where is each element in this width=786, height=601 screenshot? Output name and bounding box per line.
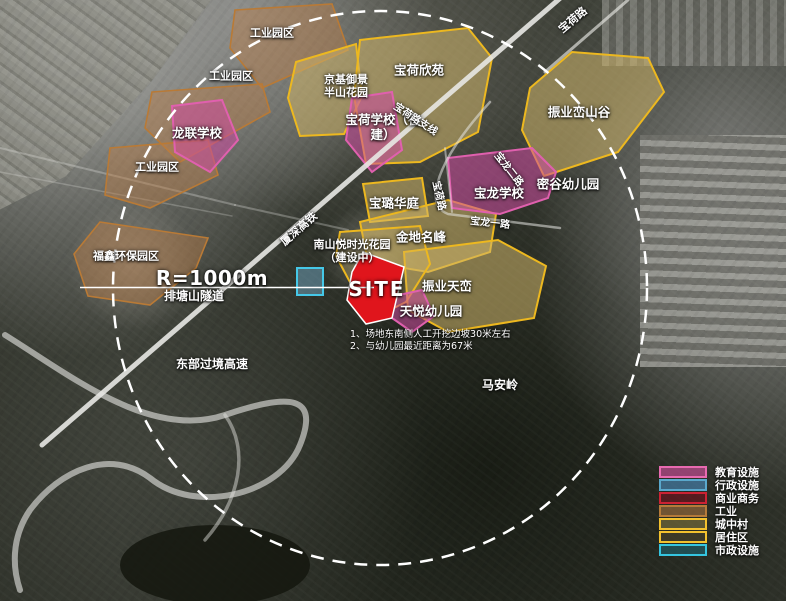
legend-row-commercial: 商业商务 xyxy=(659,493,759,503)
note-line-2: 2、与幼儿园最近距离为67米 xyxy=(350,341,511,353)
label-zhenye-luanshangu: 振业峦山谷 xyxy=(548,105,611,120)
legend-swatch-industry xyxy=(659,505,707,517)
label-site: SITE xyxy=(348,277,405,301)
legend-swatch-residential xyxy=(659,531,707,543)
label-zhenye-tianluan: 振业天峦 xyxy=(422,279,472,294)
label-tianyue-kindergarten: 天悦幼儿园 xyxy=(400,304,463,319)
legend-swatch-education xyxy=(659,466,707,478)
legend-swatch-urban-village xyxy=(659,518,707,530)
label-baolu-huating: 宝璐华庭 xyxy=(369,196,419,211)
note-line-1: 1、场地东南侧人工开挖边坡30米左右 xyxy=(350,329,511,341)
legend-row-industry: 工业 xyxy=(659,506,759,516)
label-maanling: 马安岭 xyxy=(482,378,518,392)
legend-row-urban-village: 城中村 xyxy=(659,519,759,529)
label-industrial-park-3: 工业园区 xyxy=(135,160,179,173)
label-jingji-yujing: 京基御景 半山花园 xyxy=(324,73,368,99)
legend-row-residential: 居住区 xyxy=(659,532,759,542)
legend-row-education: 教育设施 xyxy=(659,467,759,477)
site-analysis-map: 工业园区 工业园区 工业园区 龙联学校 京基御景 半山花园 宝荷学校（在建） 宝… xyxy=(0,0,786,601)
label-eastern-bypass: 东部过境高速 xyxy=(176,357,248,371)
label-longlian-school: 龙联学校 xyxy=(172,126,222,141)
legend-label-municipal: 市政设施 xyxy=(715,542,759,558)
label-paitangshan-tunnel: 排塘山隧道 xyxy=(164,289,224,303)
water-area xyxy=(120,525,310,601)
legend-row-administrative: 行政设施 xyxy=(659,480,759,490)
label-jindi-mingfeng: 金地名峰 xyxy=(396,230,446,245)
legend: 教育设施 行政设施 商业商务 工业 城中村 居住区 市政设施 xyxy=(659,467,759,558)
label-industrial-park-2: 工业园区 xyxy=(209,69,253,82)
legend-swatch-administrative xyxy=(659,479,707,491)
legend-swatch-commercial xyxy=(659,492,707,504)
legend-row-municipal: 市政设施 xyxy=(659,545,759,555)
label-baohe-xinyuan: 宝荷欣苑 xyxy=(394,63,444,78)
label-migu-kindergarten: 密谷幼儿园 xyxy=(537,177,600,192)
label-industrial-park-1: 工业园区 xyxy=(250,26,294,39)
label-nanshan-yue: 南山悦时光花园 （建设中） xyxy=(314,238,391,264)
label-fuxin-park: 福鑫环保园区 xyxy=(93,249,159,262)
zone-municipal-facility xyxy=(297,268,323,295)
label-radius-1000m: R=1000m xyxy=(156,266,268,290)
legend-swatch-municipal xyxy=(659,544,707,556)
site-notes: 1、场地东南侧人工开挖边坡30米左右 2、与幼儿园最近距离为67米 xyxy=(350,329,511,352)
